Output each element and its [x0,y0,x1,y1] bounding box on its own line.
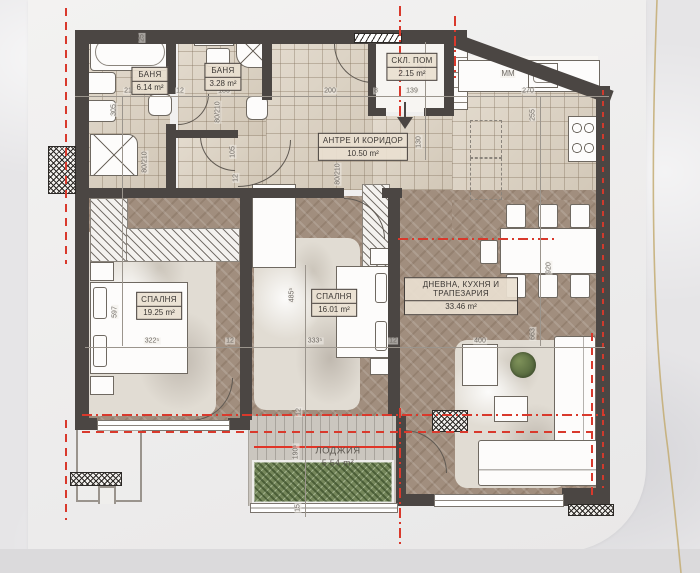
dimension: 305 [111,103,118,117]
dimension: 400 [473,338,487,345]
dimension-line [305,265,306,517]
window-living [434,494,564,507]
dining-chair [570,204,590,228]
pillow [93,287,107,319]
room-name: СКЛ. ПОМ [387,54,436,68]
section-line [398,238,556,240]
dimension: 322⁵ [144,338,161,345]
section-hatch [48,146,76,194]
pillow [375,273,387,303]
nightstand [90,376,114,395]
dimension: 8 [373,88,379,95]
dimension: 597 [112,305,119,319]
section-hatch [568,504,614,516]
dimension: 12 [388,338,398,345]
dimension: 12 [175,88,185,95]
dimension: 333⁵ [307,338,324,345]
cooktop [568,116,598,162]
wall-bedroom1-bottom-post [75,418,97,430]
section-marks [602,90,604,502]
toilet [148,94,172,116]
wall-bath-divider [166,124,176,190]
wardrobe [126,228,240,262]
dimension-line [122,96,123,346]
coffee-table [494,396,528,422]
dining-chair [480,240,498,264]
section-line [591,333,593,495]
dimension-line [540,96,541,346]
wall-right [596,86,610,506]
room-label-bath-2: БАНЯ 3.28 m² [204,63,241,91]
dimension: 12 [296,407,303,417]
kitchen-cabinet [470,158,502,200]
entrance-arrow-head [397,117,413,129]
room-label-bath-1: БАНЯ 6.14 m² [131,67,168,95]
wall-bath2-right [262,30,272,100]
dimension: 15 [295,503,302,513]
loggia-glazing [250,503,398,513]
plant [510,352,536,378]
dining-chair [538,204,558,228]
dimension: 270 [521,88,535,95]
dining-chair [570,274,590,298]
wall-vent [354,33,402,43]
room-name: БАНЯ [205,64,240,78]
room-area: 6.14 m² [132,82,167,94]
dimension: 255 [530,108,537,122]
wall-bedroom2-living [388,188,400,416]
dimension: 80/210 [142,150,149,173]
section-line [82,414,605,416]
dimension: 12 [225,338,235,345]
dining-chair [538,274,558,298]
dining-chair [506,204,526,228]
wall-storage-bottom [368,108,386,116]
section-line [82,431,592,433]
dimension-line [85,347,605,348]
room-area: 19.25 m² [137,307,181,319]
dimension: 663 [530,327,537,341]
room-area: 3.28 m² [205,78,240,90]
dimension: 105 [230,145,237,159]
wall-bath2-bottom [176,130,238,138]
wall-bedroom2-top [251,188,344,198]
dimension: 190⁵ [293,444,300,461]
dimension: 130 [416,135,423,149]
room-label-bedroom-2: СПАЛНЯ 16.01 m² [311,289,357,317]
nightstand [370,358,390,375]
room-name: СПАЛНЯ [312,290,356,304]
room-area: 16.01 m² [312,304,356,316]
entrance-arrow [404,102,406,118]
nightstand [90,262,114,281]
sofa-seat [478,440,598,486]
section-line [65,8,67,264]
room-label-loggia: ЛОДЖИЯ 5.54 m² [315,445,360,468]
wall-left [75,30,89,430]
room-area: 33.46 m² [405,302,517,314]
dimension: 139 [405,88,419,95]
room-label-living: ДНЕВНА, КУХНЯ И ТРАПЕЗАРИЯ 33.46 m² [404,277,518,315]
room-name: АНТРЕ И КОРИДОР [319,134,407,148]
appliance-label: ММ [500,70,515,78]
shower [90,134,138,176]
dimension: 25 [139,33,146,43]
dimension: 485⁵ [289,287,296,304]
adjacent-structure-notch [98,486,116,504]
room-name: СПАЛНЯ [137,293,181,307]
room-area: 2.15 m² [387,68,436,80]
section-line [454,16,456,78]
room-area: 5.54 m² [315,458,360,469]
wall-bedrooms-top [75,188,251,198]
section-line [65,420,67,520]
dimension: 920 [546,261,553,275]
wall-bedroom1-bottom-post [228,418,250,430]
dimension: 80/210 [215,100,222,123]
wall-living-bottom-post [396,494,434,506]
dimension: 200 [323,88,337,95]
room-name: ЛОДЖИЯ [315,445,360,457]
room-name: БАНЯ [132,68,167,82]
dimension: 12 [233,173,240,183]
section-hatch [70,472,122,486]
tv-cabinet [462,344,498,386]
room-label-storage: СКЛ. ПОМ 2.15 m² [386,53,437,81]
fridge [470,120,502,158]
wall-loggia-right [396,416,406,506]
room-name: ДНЕВНА, КУХНЯ И ТРАПЕЗАРИЯ [405,278,517,301]
sink [88,72,116,94]
background-strip [0,549,700,573]
room-area: 10.50 m² [319,148,407,160]
room-label-bedroom-1: СПАЛНЯ 19.25 m² [136,292,182,320]
wall-bedroom-divider [240,188,252,420]
dimension: 80/210 [335,162,342,185]
room-label-hall: АНТРЕ И КОРИДОР 10.50 m² [318,133,408,161]
section-line [399,408,401,548]
wall-kitchen-left [444,36,454,116]
nightstand [370,248,390,265]
pillow [93,335,107,367]
dimension-line [75,96,609,97]
